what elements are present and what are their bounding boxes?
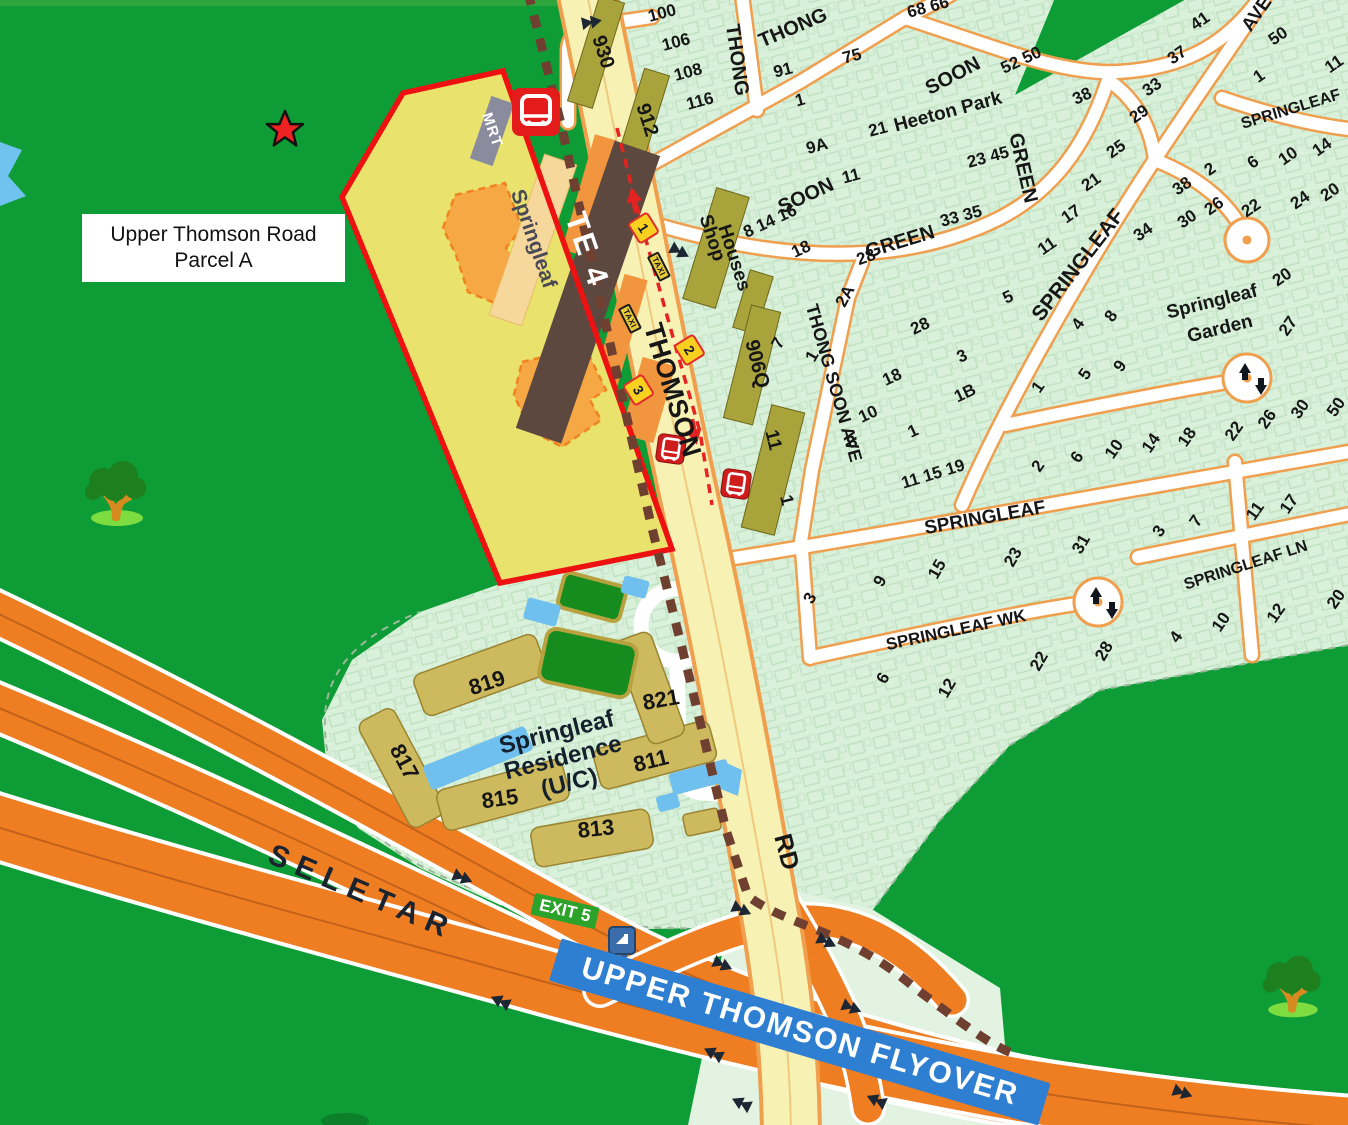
map-label: 815 <box>480 786 519 813</box>
map-label: 813 <box>577 816 616 842</box>
parcel-legend-line2: Parcel A <box>174 248 252 274</box>
street-directory-map: Upper Thomson Road Parcel A MRT Springle… <box>0 0 1348 1125</box>
parcel-legend-line1: Upper Thomson Road <box>110 222 316 248</box>
map-label: 75 <box>841 45 864 66</box>
bus-stop-icon <box>720 468 752 500</box>
map-canvas <box>0 0 1348 1125</box>
map-label: 91 <box>772 59 795 80</box>
parcel-legend-box: Upper Thomson Road Parcel A <box>82 214 345 282</box>
mrt-train-icon <box>512 88 560 136</box>
map-label: 21 <box>867 118 890 139</box>
